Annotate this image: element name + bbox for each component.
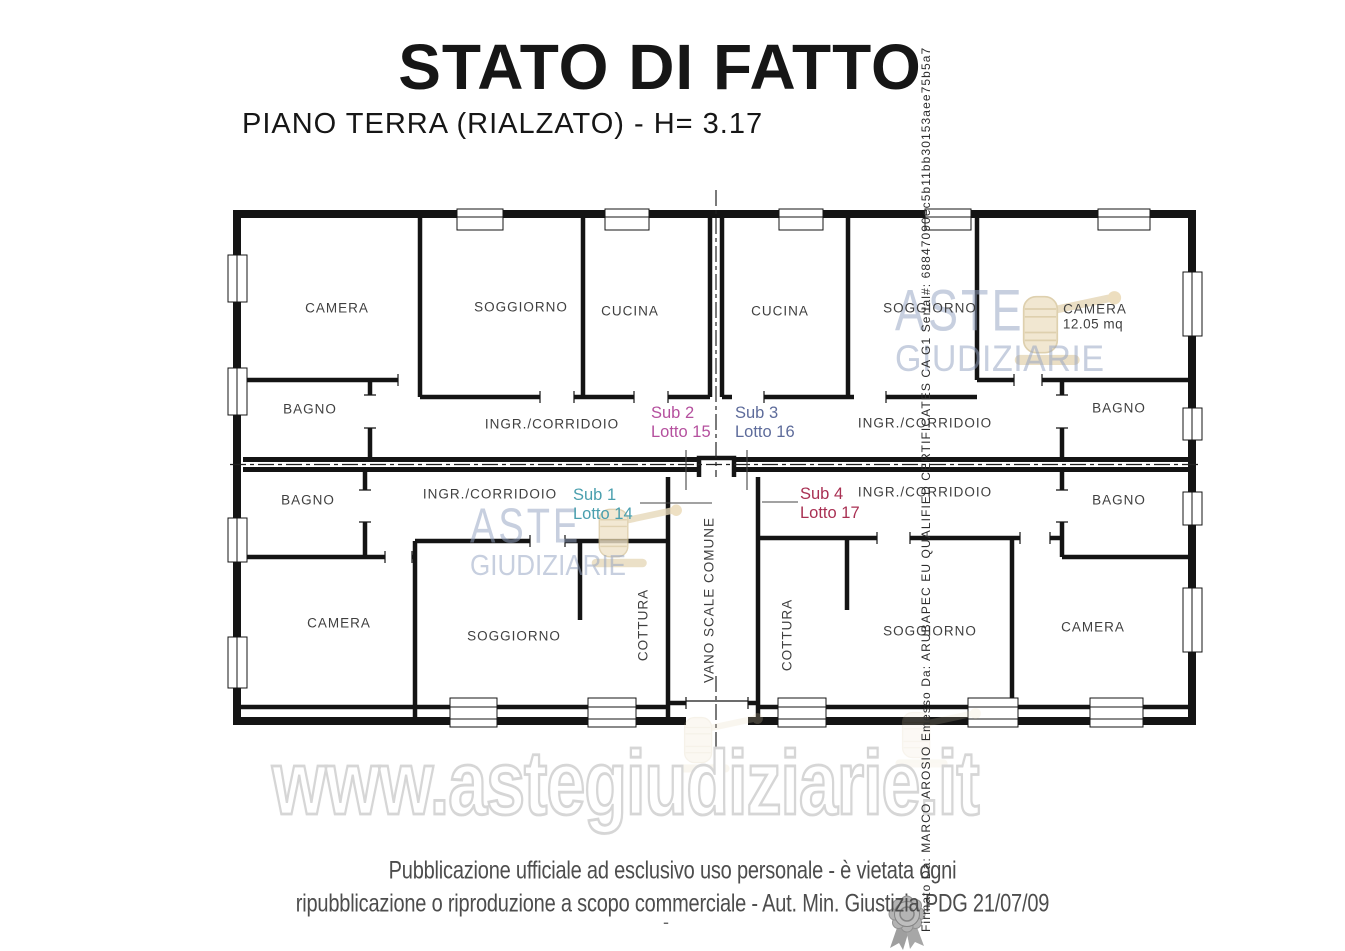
- page-subtitle: PIANO TERRA (RIALZATO) - H= 3.17: [242, 108, 763, 141]
- unit-label-sub2: Sub 2 Lotto 15: [651, 404, 711, 441]
- room-area-value: 12.05 mq: [1063, 317, 1123, 332]
- footer-line-1-text: Pubblicazione ufficiale ad esclusivo uso…: [389, 857, 957, 886]
- room-label-cottura: COTTURA: [780, 599, 795, 671]
- footer-line-2-text: ripubblicazione o riproduzione a scopo c…: [296, 890, 1049, 919]
- unit-label-sub3: Sub 3 Lotto 16: [735, 404, 795, 441]
- unit-sub: Sub 1: [573, 486, 633, 505]
- room-label-camera: CAMERA: [307, 616, 371, 631]
- room-label-corridoio: INGR./CORRIDOIO: [485, 417, 619, 432]
- watermark-logo-line2: GIUDIZIARIE: [470, 551, 626, 580]
- room-label-cottura: COTTURA: [636, 589, 651, 661]
- unit-lotto: Lotto 16: [735, 423, 795, 442]
- room-label-camera: CAMERA: [305, 301, 369, 316]
- unit-sub: Sub 4: [800, 485, 860, 504]
- digital-signature-text: Firmato Da: MARCO AROSIO Emesso Da: ARUB…: [919, 47, 933, 932]
- room-label-bagno: BAGNO: [1092, 493, 1146, 508]
- room-label-cucina: CUCINA: [751, 304, 809, 319]
- room-label-bagno: BAGNO: [1092, 401, 1146, 416]
- footer-mark: -: [663, 912, 669, 933]
- room-label-vano-scale: VANO SCALE COMUNE: [702, 517, 717, 683]
- unit-sub: Sub 3: [735, 404, 795, 423]
- unit-sub: Sub 2: [651, 404, 711, 423]
- room-label-soggiorno: SOGGIORNO: [467, 629, 561, 644]
- unit-lotto: Lotto 15: [651, 423, 711, 442]
- unit-label-sub4: Sub 4 Lotto 17: [800, 485, 860, 522]
- document-page: STATO DI FATTO PIANO TERRA (RIALZATO) - …: [0, 0, 1345, 951]
- room-label-soggiorno: SOGGIORNO: [474, 300, 568, 315]
- room-label-corridoio: INGR./CORRIDOIO: [423, 487, 557, 502]
- room-label-camera: CAMERA: [1061, 620, 1125, 635]
- room-label-cucina: CUCINA: [601, 304, 659, 319]
- room-label-bagno: BAGNO: [281, 493, 335, 508]
- unit-lotto: Lotto 14: [573, 505, 633, 524]
- footer-line-2: ripubblicazione o riproduzione a scopo c…: [0, 893, 1345, 916]
- footer-line-1: Pubblicazione ufficiale ad esclusivo uso…: [0, 860, 1345, 883]
- room-label-bagno: BAGNO: [283, 402, 337, 417]
- page-title: STATO DI FATTO: [398, 30, 922, 104]
- unit-lotto: Lotto 17: [800, 504, 860, 523]
- room-label-camera: CAMERA: [1063, 302, 1127, 317]
- website-watermark: www.astegiudiziarie.it: [272, 731, 979, 835]
- unit-label-sub1: Sub 1 Lotto 14: [573, 486, 633, 523]
